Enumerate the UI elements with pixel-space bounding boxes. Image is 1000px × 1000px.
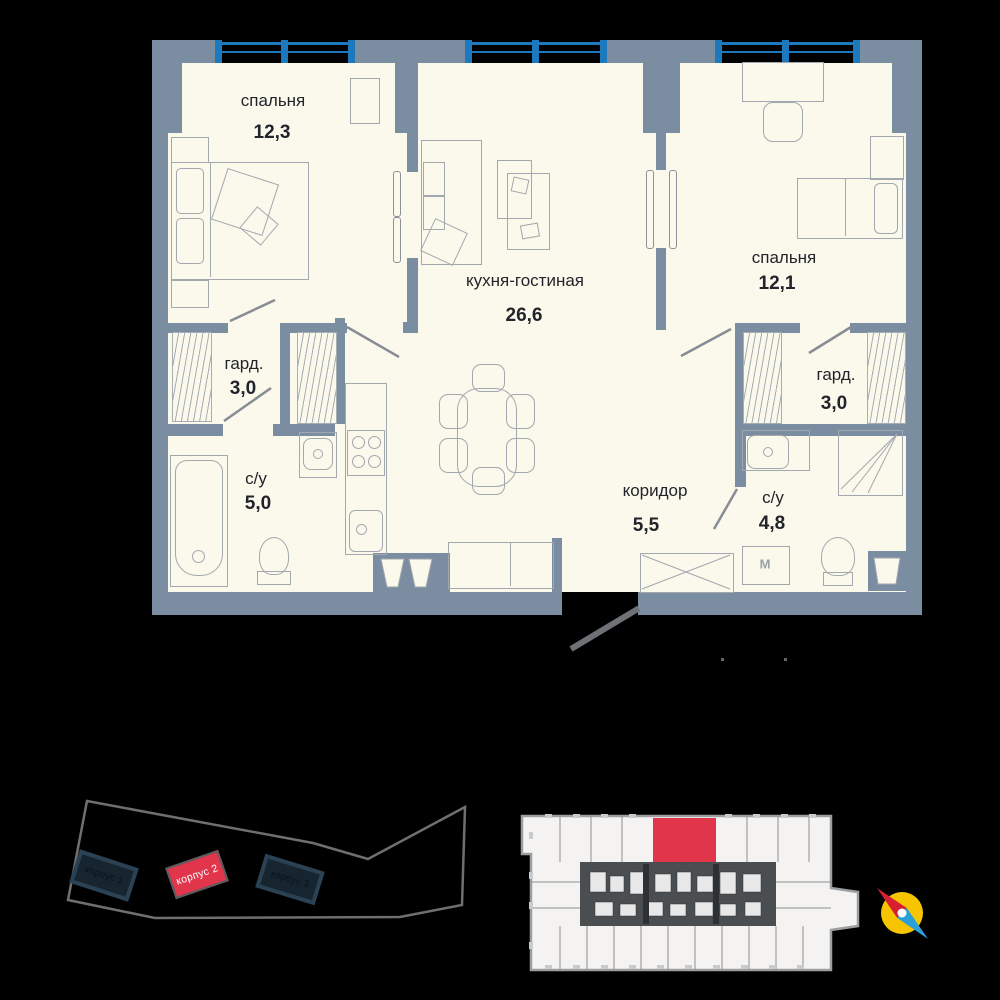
room-area-wardrobe-right: 3,0 bbox=[821, 393, 847, 415]
room-label-bath-left: с/у bbox=[245, 469, 267, 489]
room-area-bath-right: 4,8 bbox=[759, 513, 785, 535]
room-label-living: кухня-гостиная bbox=[466, 271, 584, 291]
room-label-wardrobe-left: гард. bbox=[225, 354, 264, 374]
room-label-corridor: коридор bbox=[623, 481, 688, 501]
room-label-bedroom2: спальня bbox=[752, 248, 817, 268]
room-area-bedroom2: 12,1 bbox=[759, 273, 796, 295]
room-area-wardrobe-left: 3,0 bbox=[230, 378, 256, 400]
room-label-bath-right: с/у bbox=[762, 488, 784, 508]
room-area-living: 26,6 bbox=[506, 305, 543, 327]
floor-core bbox=[580, 862, 776, 926]
floor-overview-plan bbox=[515, 802, 865, 980]
building-label: корпус 3 bbox=[269, 868, 310, 890]
room-label-wardrobe-right: гард. bbox=[817, 365, 856, 385]
compass-icon bbox=[871, 884, 933, 946]
room-area-bedroom1: 12,3 bbox=[254, 122, 291, 144]
selected-unit-highlight[interactable] bbox=[653, 818, 716, 862]
room-area-corridor: 5,5 bbox=[633, 515, 659, 537]
building-label: корпус 2 bbox=[174, 862, 219, 888]
room-label-bedroom1: спальня bbox=[241, 91, 306, 111]
building-label: корпус 1 bbox=[83, 864, 124, 887]
floorplan-page: M спальня 12,3 кухня-гостиная bbox=[0, 0, 1000, 1000]
room-area-bath-left: 5,0 bbox=[245, 493, 271, 515]
